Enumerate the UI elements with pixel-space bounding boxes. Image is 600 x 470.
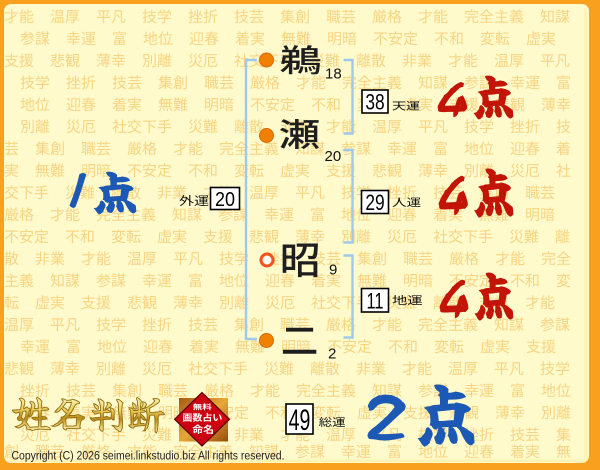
svg-text:Copyright (C) 2026 seimei.link: Copyright (C) 2026 seimei.linkstudio.biz… [12, 449, 285, 463]
svg-text:20: 20 [325, 148, 342, 165]
svg-text:49: 49 [289, 404, 311, 437]
svg-text:2: 2 [328, 346, 336, 363]
svg-text:29: 29 [365, 190, 384, 215]
svg-text:11: 11 [367, 288, 384, 313]
svg-text:38: 38 [365, 90, 384, 115]
svg-text:9: 9 [329, 262, 337, 279]
svg-text:20: 20 [215, 188, 235, 211]
svg-text:18: 18 [325, 66, 342, 83]
